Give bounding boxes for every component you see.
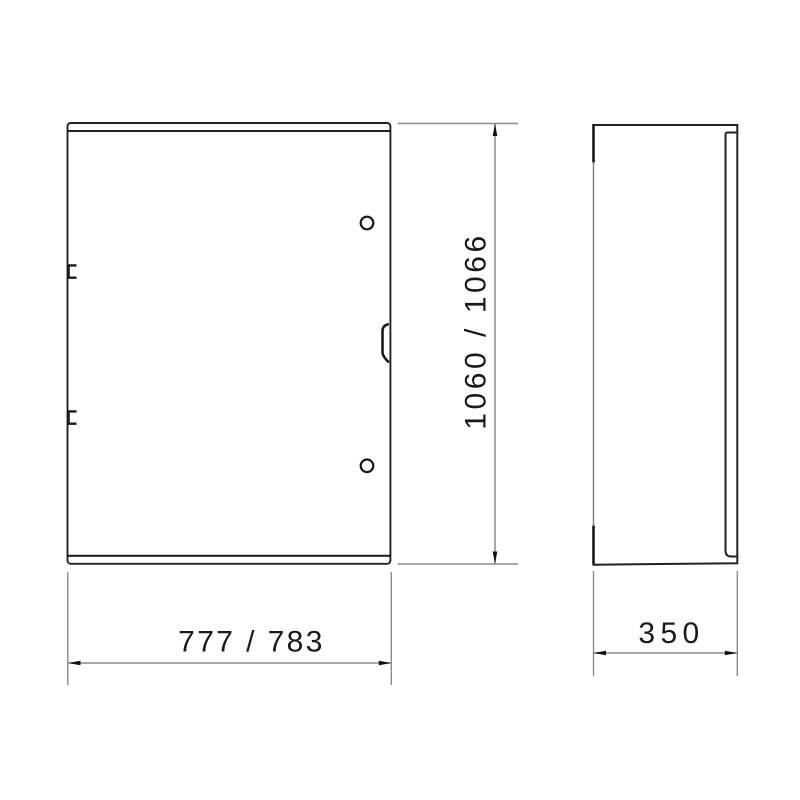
svg-text:777 / 783: 777 / 783 [178,626,325,659]
svg-text:1060 / 1066: 1060 / 1066 [460,232,493,430]
svg-text:350: 350 [638,617,704,650]
